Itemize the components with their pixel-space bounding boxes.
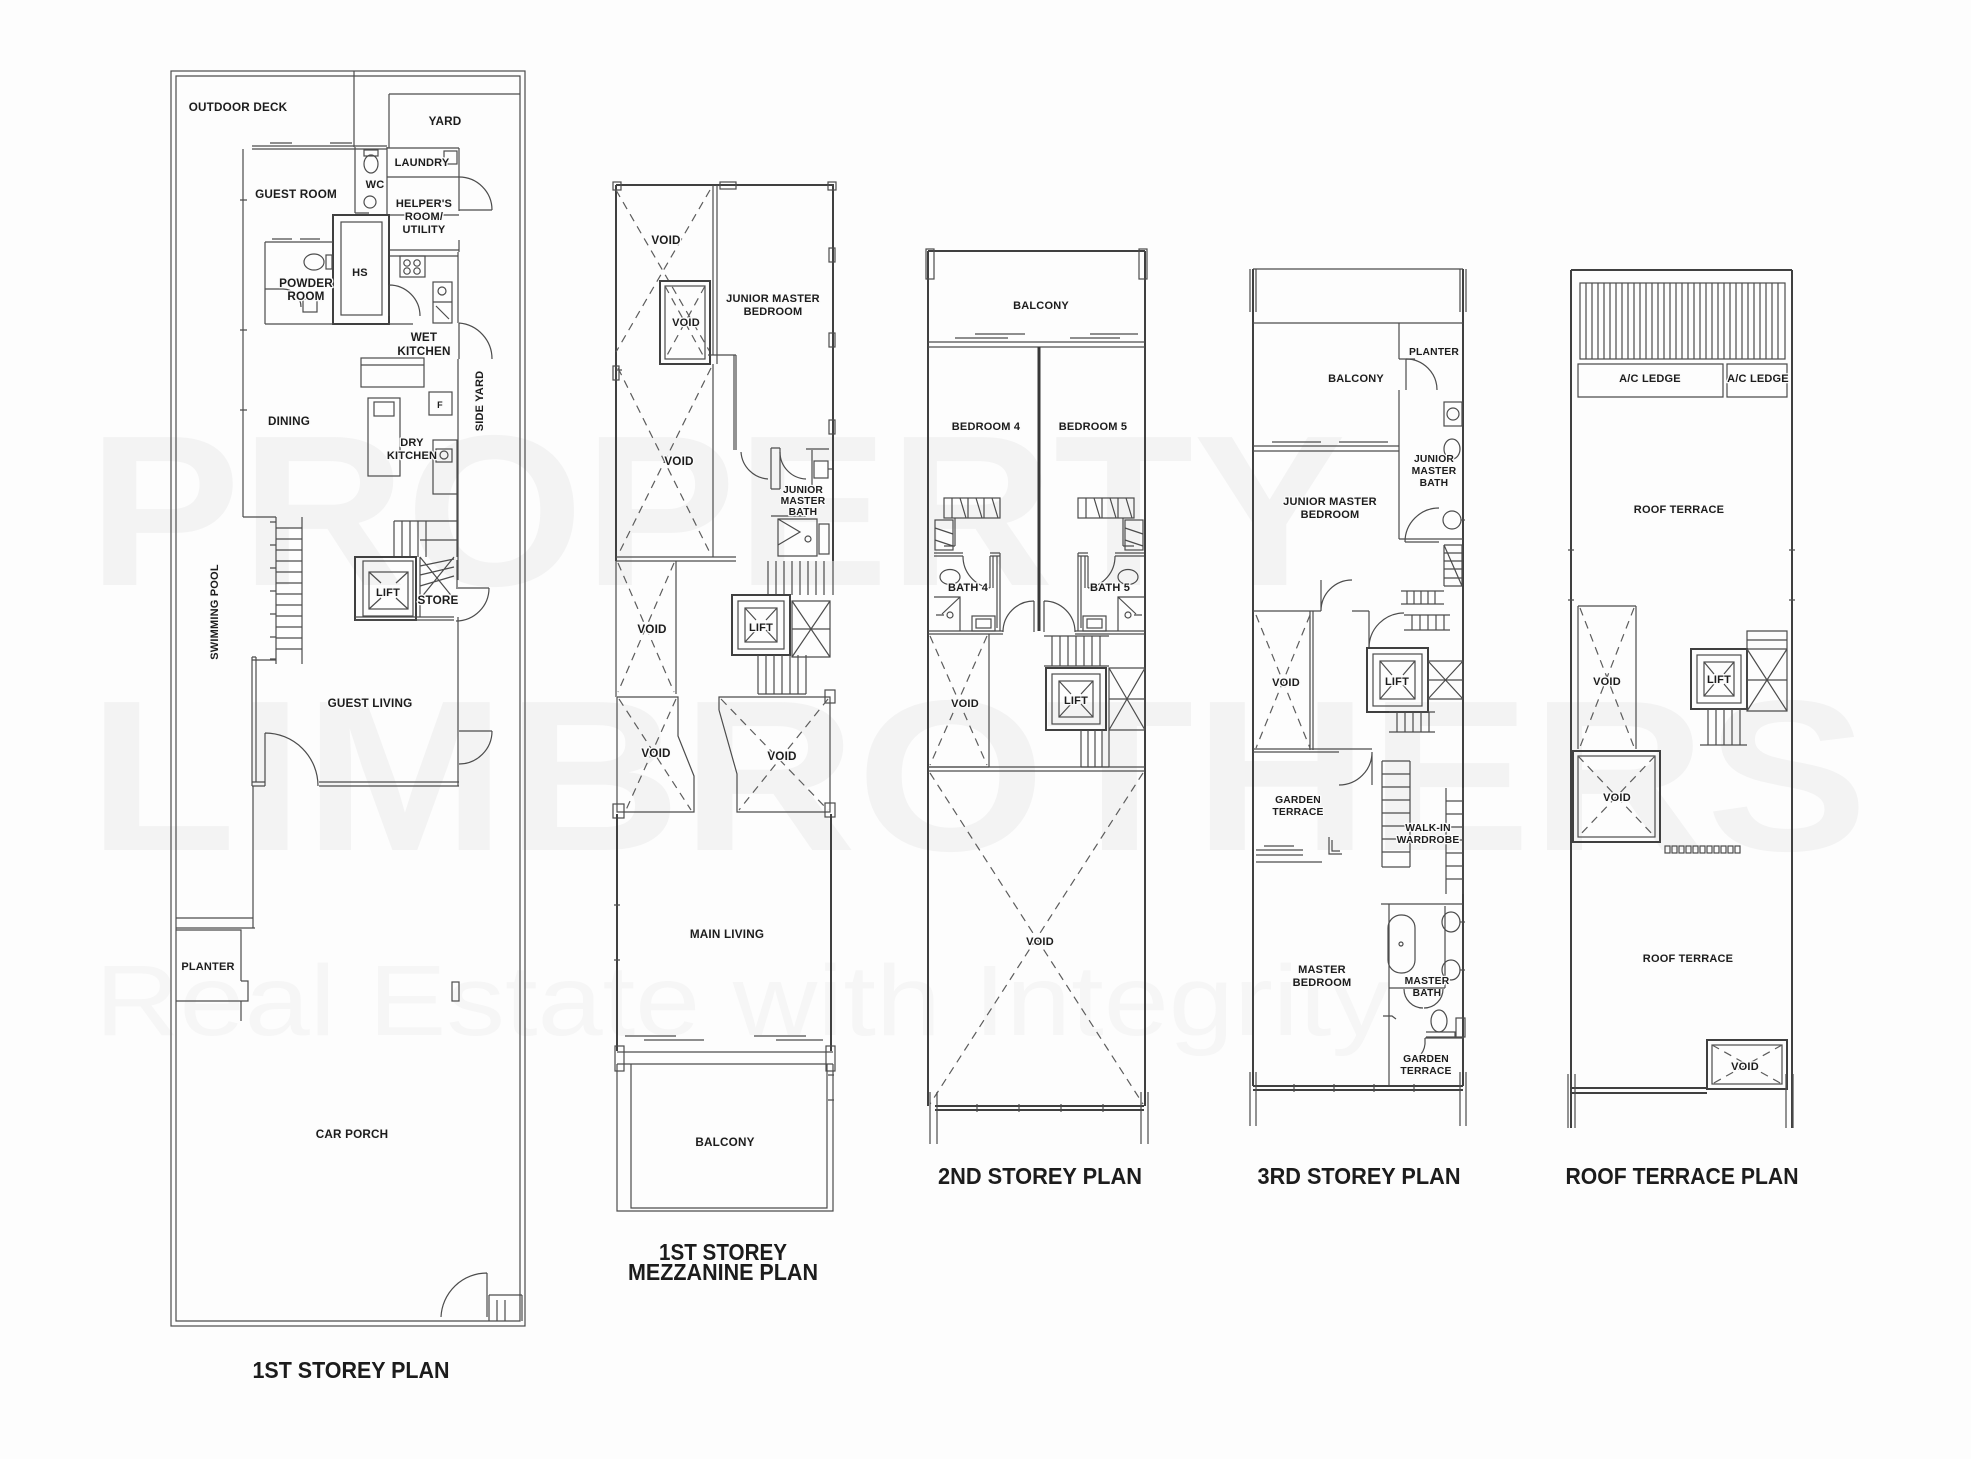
svg-text:A/C LEDGE: A/C LEDGE — [1619, 373, 1681, 385]
svg-text:2ND STOREY PLAN: 2ND STOREY PLAN — [938, 1163, 1142, 1189]
svg-text:LIFT: LIFT — [376, 587, 400, 599]
svg-text:GUEST LIVING: GUEST LIVING — [328, 697, 413, 710]
svg-text:MEZZANINE PLAN: MEZZANINE PLAN — [628, 1259, 818, 1285]
svg-text:BATH 4: BATH 4 — [948, 582, 989, 594]
svg-text:BALCONY: BALCONY — [695, 1136, 754, 1149]
svg-text:BEDROOM: BEDROOM — [1293, 977, 1352, 989]
svg-text:LAUNDRY: LAUNDRY — [395, 157, 450, 169]
svg-text:WC: WC — [366, 179, 385, 191]
svg-text:GARDEN: GARDEN — [1275, 795, 1321, 806]
svg-text:DINING: DINING — [268, 415, 310, 428]
svg-text:TERRACE: TERRACE — [1272, 807, 1323, 818]
svg-text:BATH 5: BATH 5 — [1090, 582, 1130, 594]
svg-text:LIFT: LIFT — [1385, 676, 1409, 688]
svg-text:BEDROOM: BEDROOM — [744, 306, 803, 318]
svg-text:GARDEN: GARDEN — [1403, 1054, 1449, 1065]
svg-text:JUNIOR MASTER: JUNIOR MASTER — [1283, 496, 1377, 508]
svg-text:MASTER: MASTER — [1405, 976, 1450, 987]
svg-text:STORE: STORE — [417, 594, 458, 607]
svg-text:LIFT: LIFT — [749, 622, 773, 634]
svg-text:SWIMMING POOL: SWIMMING POOL — [209, 564, 221, 660]
svg-text:BATH: BATH — [789, 507, 818, 518]
svg-text:LIMBROTHERS: LIMBROTHERS — [88, 655, 1868, 896]
svg-text:JUNIOR MASTER: JUNIOR MASTER — [726, 293, 820, 305]
svg-text:OUTDOOR DECK: OUTDOOR DECK — [189, 101, 288, 114]
svg-text:VOID: VOID — [672, 317, 700, 329]
svg-text:F: F — [437, 400, 443, 410]
svg-text:YARD: YARD — [429, 115, 462, 128]
svg-text:LIFT: LIFT — [1707, 674, 1731, 686]
svg-text:GUEST ROOM: GUEST ROOM — [255, 188, 337, 201]
svg-text:JUNIOR: JUNIOR — [783, 485, 823, 496]
svg-text:ROOM/: ROOM/ — [405, 211, 443, 223]
svg-text:POWDER: POWDER — [279, 277, 333, 290]
svg-text:LIFT: LIFT — [1064, 695, 1088, 707]
svg-text:DRY: DRY — [400, 437, 424, 449]
svg-text:HELPER'S: HELPER'S — [396, 198, 452, 210]
svg-text:1ST STOREY PLAN: 1ST STOREY PLAN — [253, 1357, 450, 1383]
svg-text:BEDROOM 5: BEDROOM 5 — [1059, 421, 1127, 433]
svg-text:MAIN LIVING: MAIN LIVING — [690, 928, 764, 941]
svg-text:VOID: VOID — [1593, 676, 1621, 688]
svg-text:ROOF TERRACE PLAN: ROOF TERRACE PLAN — [1566, 1163, 1799, 1189]
svg-text:WARDROBE: WARDROBE — [1397, 835, 1460, 846]
svg-text:UTILITY: UTILITY — [403, 224, 446, 236]
svg-text:VOID: VOID — [1272, 677, 1300, 689]
svg-text:Real Estate with Integrity: Real Estate with Integrity — [95, 945, 1390, 1057]
svg-text:MASTER: MASTER — [1298, 964, 1346, 976]
svg-text:TERRACE: TERRACE — [1400, 1066, 1451, 1077]
svg-text:KITCHEN: KITCHEN — [387, 450, 437, 462]
svg-text:VOID: VOID — [651, 234, 680, 247]
svg-text:3RD STOREY PLAN: 3RD STOREY PLAN — [1258, 1163, 1461, 1189]
svg-text:VOID: VOID — [1603, 792, 1631, 804]
svg-text:PLANTER: PLANTER — [181, 961, 234, 973]
svg-text:PLANTER: PLANTER — [1409, 347, 1459, 358]
svg-text:BEDROOM: BEDROOM — [1301, 509, 1360, 521]
svg-text:HS: HS — [352, 267, 368, 279]
svg-text:VOID: VOID — [641, 747, 670, 760]
svg-text:WALK-IN: WALK-IN — [1405, 823, 1450, 834]
svg-text:JUNIOR: JUNIOR — [1414, 454, 1454, 465]
svg-text:WET: WET — [411, 331, 438, 344]
svg-text:BATH: BATH — [1420, 478, 1449, 489]
svg-text:CAR PORCH: CAR PORCH — [316, 1128, 389, 1141]
svg-text:VOID: VOID — [951, 698, 979, 710]
svg-text:SIDE YARD: SIDE YARD — [474, 371, 486, 432]
svg-text:A/C LEDGE: A/C LEDGE — [1727, 373, 1789, 385]
svg-text:BALCONY: BALCONY — [1013, 300, 1069, 312]
svg-text:ROOF TERRACE: ROOF TERRACE — [1643, 953, 1733, 965]
svg-text:BALCONY: BALCONY — [1328, 373, 1384, 385]
svg-text:BEDROOM 4: BEDROOM 4 — [952, 421, 1021, 433]
svg-text:ROOM: ROOM — [287, 290, 324, 303]
svg-text:VOID: VOID — [664, 455, 693, 468]
svg-text:VOID: VOID — [767, 750, 796, 763]
svg-text:VOID: VOID — [1731, 1061, 1759, 1073]
svg-text:MASTER: MASTER — [1412, 466, 1457, 477]
svg-text:VOID: VOID — [1026, 936, 1054, 948]
svg-text:ROOF TERRACE: ROOF TERRACE — [1634, 504, 1724, 516]
svg-text:KITCHEN: KITCHEN — [397, 345, 450, 358]
svg-text:VOID: VOID — [637, 623, 666, 636]
svg-text:BATH: BATH — [1413, 988, 1442, 999]
svg-text:MASTER: MASTER — [781, 496, 826, 507]
